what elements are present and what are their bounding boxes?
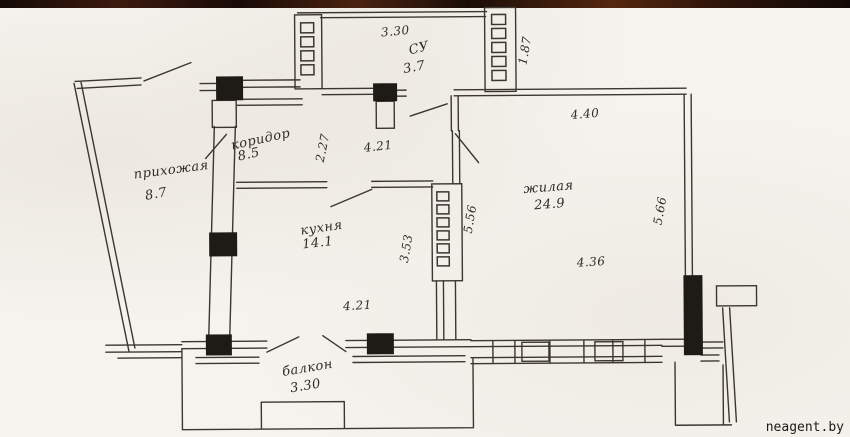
room-area-kitchen: 14.1 bbox=[302, 234, 334, 252]
wall-bathroom-bottom bbox=[322, 88, 373, 94]
outside-step-box bbox=[716, 286, 756, 306]
dim-living-width-top: 4.40 bbox=[569, 106, 600, 122]
pillar bbox=[373, 83, 397, 101]
wall-middle bbox=[207, 126, 236, 335]
bathroom-door-leaf bbox=[410, 104, 447, 116]
dim-living-width-bottom: 4.36 bbox=[575, 254, 605, 270]
dim-corridor-width: 4.21 bbox=[362, 138, 393, 155]
dim-kitchen-width: 4.21 bbox=[342, 298, 372, 314]
window-sill-1 bbox=[522, 342, 549, 361]
wall-left-slanted bbox=[74, 82, 135, 351]
dim-living-depth-right: 5.66 bbox=[651, 195, 670, 226]
dim-bathroom-depth: 1.87 bbox=[516, 35, 535, 66]
window-band-living bbox=[471, 339, 662, 363]
room-area-balcony: 3.30 bbox=[289, 376, 322, 396]
room-label-bathroom: СУ bbox=[407, 39, 432, 59]
closet-box bbox=[212, 100, 236, 127]
floor-plan-photo: прихожая 8.7 коридор 8.5 СУ 3.7 кухня 14… bbox=[0, 0, 850, 437]
room-area-hallway: 8.7 bbox=[144, 185, 169, 204]
kitchen-door-leaf bbox=[331, 189, 372, 206]
window-sill-2 bbox=[595, 342, 623, 361]
dim-corridor-depth: 2.27 bbox=[313, 132, 333, 164]
entry-door-leaf bbox=[144, 63, 191, 81]
dim-kitchen-depth: 3.53 bbox=[397, 233, 416, 264]
pillar bbox=[209, 232, 237, 256]
balcony-door-leaf-left bbox=[267, 337, 299, 352]
room-label-hallway: прихожая bbox=[133, 158, 210, 183]
pillar bbox=[216, 76, 243, 100]
wall-entry-top bbox=[75, 78, 141, 88]
dim-living-depth-left: 5.56 bbox=[461, 204, 480, 235]
balcony-step bbox=[261, 402, 344, 429]
structural-pillars bbox=[204, 73, 703, 358]
pillar bbox=[367, 333, 394, 354]
wall-bathroom-top bbox=[298, 12, 487, 18]
bathroom-fixture-box bbox=[376, 101, 394, 128]
floor-plan-drawing: прихожая 8.7 коридор 8.5 СУ 3.7 кухня 14… bbox=[0, 0, 850, 437]
vent-shaft-left bbox=[295, 15, 323, 89]
balcony-door-leaf-right bbox=[323, 336, 346, 352]
room-area-living: 24.9 bbox=[533, 196, 566, 213]
room-label-balcony: балкон bbox=[281, 357, 334, 380]
vent-shaft-right bbox=[485, 7, 517, 91]
room-area-bathroom: 3.7 bbox=[402, 58, 427, 77]
pillar-living-right bbox=[683, 275, 703, 355]
hall-door-leaf bbox=[205, 134, 226, 158]
watermark: neagent.by bbox=[766, 420, 844, 435]
living-door-post bbox=[451, 96, 458, 131]
room-label-living: жилая bbox=[523, 178, 574, 197]
pillar bbox=[206, 334, 232, 355]
dim-bathroom-width: 3.30 bbox=[380, 23, 410, 40]
